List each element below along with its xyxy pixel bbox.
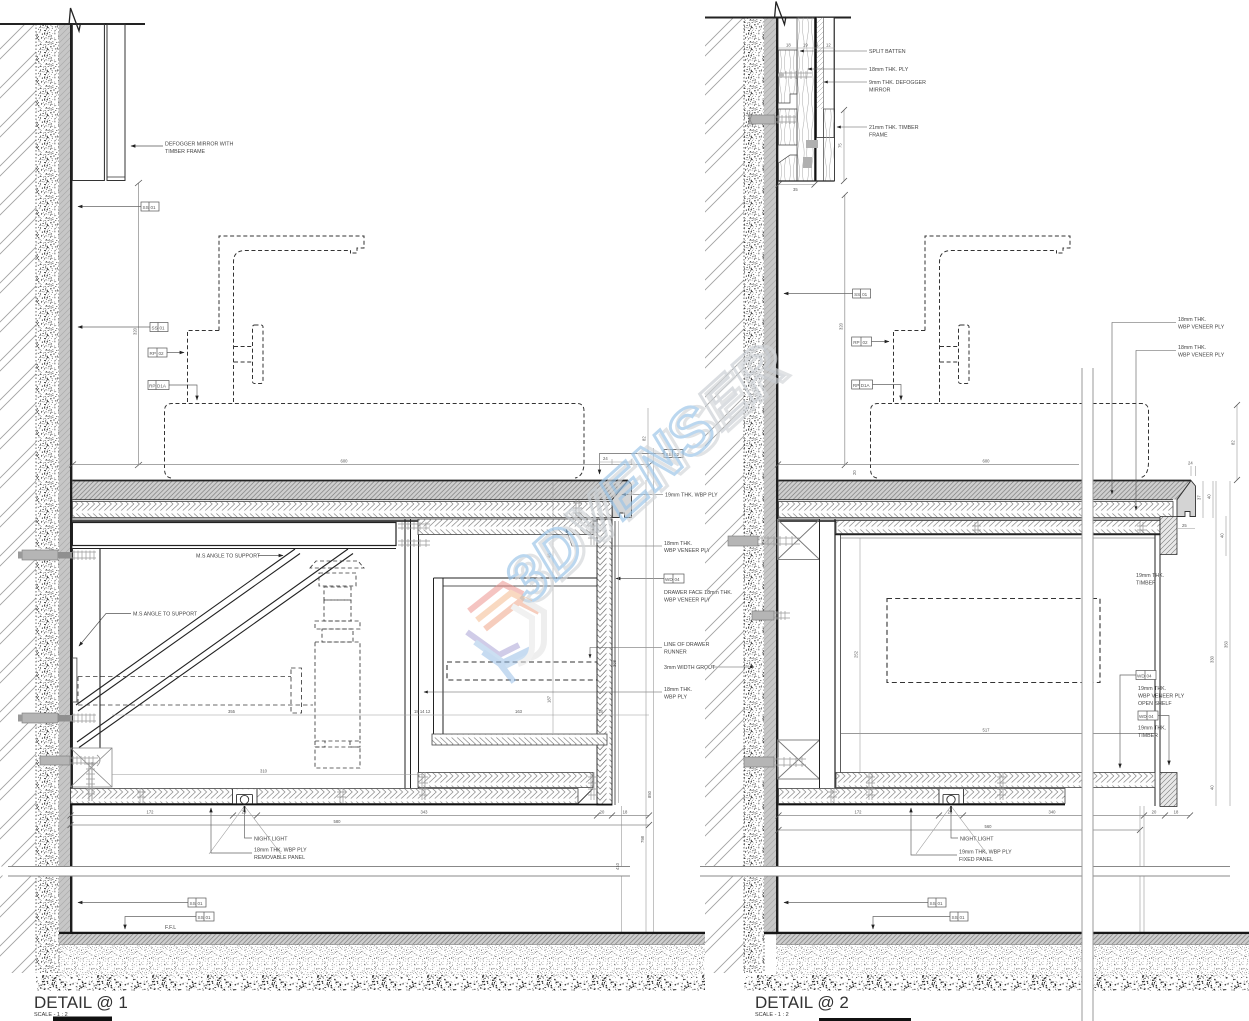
svg-text:18mm THK.: 18mm THK. [664,687,692,693]
svg-text:SS: SS [854,292,860,297]
svg-text:320: 320 [133,327,138,335]
svg-text:20: 20 [1152,810,1157,815]
svg-text:18mm THK.: 18mm THK. [1178,317,1206,323]
svg-text:TIMBER: TIMBER [1138,733,1158,739]
svg-text:308: 308 [612,659,617,667]
svg-text:WBP VENEER PLY: WBP VENEER PLY [1138,694,1185,700]
svg-text:TIMBER: TIMBER [1136,581,1156,587]
svg-text:18: 18 [623,810,628,815]
svg-text:35: 35 [793,187,798,192]
svg-text:798: 798 [640,835,645,843]
svg-text:TIMBER FRAME: TIMBER FRAME [165,149,205,155]
svg-text:WBP VENEER PLY: WBP VENEER PLY [1178,325,1225,331]
svg-text:04: 04 [675,577,681,582]
svg-text:600: 600 [341,459,349,464]
svg-text:OPEN SHELF: OPEN SHELF [1138,701,1172,707]
svg-text:355: 355 [228,709,236,714]
svg-text:350: 350 [1224,640,1229,648]
svg-text:SS: SS [930,901,936,906]
svg-text:560: 560 [985,824,993,829]
svg-text:D1A: D1A [157,384,167,389]
svg-text:340: 340 [1049,810,1057,815]
svg-text:FRAME: FRAME [869,133,888,139]
svg-text:SS: SS [143,205,149,210]
svg-text:24: 24 [1188,461,1193,466]
svg-text:25: 25 [1182,523,1187,528]
svg-text:DETAIL @ 1: DETAIL @ 1 [34,993,128,1012]
svg-text:172: 172 [147,810,155,815]
svg-text:F.F.L: F.F.L [165,925,176,931]
svg-text:RUNNER: RUNNER [664,650,687,656]
svg-text:850: 850 [647,790,652,798]
svg-text:02: 02 [863,340,869,345]
svg-text:600: 600 [983,459,991,464]
svg-text:LINE OF DRAWER: LINE OF DRAWER [664,642,710,648]
svg-text:MIRROR: MIRROR [869,88,891,94]
svg-text:SS: SS [152,326,158,331]
svg-text:19mm THK.: 19mm THK. [1138,726,1166,732]
svg-text:01: 01 [151,205,157,210]
svg-text:02: 02 [159,351,165,356]
svg-text:18: 18 [1174,810,1179,815]
svg-text:18mm THK.: 18mm THK. [1178,345,1206,351]
svg-text:19: 19 [803,43,808,48]
svg-text:18 14 12: 18 14 12 [414,709,431,714]
svg-text:WBP VENEER PLY: WBP VENEER PLY [664,548,711,554]
svg-text:517: 517 [983,728,991,733]
svg-text:D1A: D1A [861,383,871,388]
svg-text:SS: SS [198,915,204,920]
svg-text:SCALE - 1 : 2: SCALE - 1 : 2 [755,1012,789,1018]
svg-text:M.S ANGLE TO SUPPORT: M.S ANGLE TO SUPPORT [196,554,261,560]
svg-text:19mm THK. WBP PLY: 19mm THK. WBP PLY [959,850,1012,856]
svg-text:M.S ANGLE TO SUPPORT: M.S ANGLE TO SUPPORT [133,612,198,618]
svg-text:SPLIT BATTEN: SPLIT BATTEN [869,49,906,55]
svg-text:9mm THK. DEFOGGER: 9mm THK. DEFOGGER [869,80,926,86]
svg-text:18mm THK. WBP PLY: 18mm THK. WBP PLY [254,848,307,854]
svg-text:RP: RP [149,384,155,389]
svg-text:163: 163 [515,709,523,714]
svg-text:82: 82 [1231,440,1236,445]
svg-text:SS: SS [952,915,958,920]
svg-text:NIGHT LIGHT: NIGHT LIGHT [254,837,288,843]
svg-text:75: 75 [838,143,843,148]
svg-text:WBP PLY: WBP PLY [664,695,688,701]
svg-text:19mm THK.: 19mm THK. [1138,686,1166,692]
svg-text:18: 18 [786,43,791,48]
svg-text:20: 20 [600,810,605,815]
svg-text:SS: SS [190,901,196,906]
svg-text:DEFOGGER MIRROR WITH: DEFOGGER MIRROR WITH [165,142,233,148]
svg-text:40: 40 [1220,533,1225,538]
svg-text:01: 01 [862,292,868,297]
svg-text:21mm THK. TIMBER: 21mm THK. TIMBER [869,125,919,131]
svg-text:343: 343 [421,810,429,815]
svg-text:04: 04 [1149,714,1155,719]
svg-text:FIXED PANEL: FIXED PANEL [959,857,993,863]
svg-text:WD: WD [1137,674,1145,679]
svg-text:DETAIL @ 2: DETAIL @ 2 [755,993,849,1012]
svg-text:330: 330 [1210,655,1215,663]
svg-text:410: 410 [615,862,620,870]
svg-text:01: 01 [160,326,166,331]
svg-text:20: 20 [852,470,857,475]
svg-text:RP: RP [853,340,859,345]
svg-text:01: 01 [938,901,944,906]
svg-text:580: 580 [334,819,342,824]
svg-text:18: 18 [598,709,603,714]
svg-text:40: 40 [1210,785,1215,790]
svg-text:19mm THK.: 19mm THK. [1136,573,1164,579]
svg-text:NIGHT LIGHT: NIGHT LIGHT [960,837,994,843]
svg-text:WD: WD [665,577,673,582]
svg-text:REMOVABLE PANEL: REMOVABLE PANEL [254,855,305,861]
svg-text:37: 37 [1197,495,1202,500]
svg-text:WD: WD [1139,714,1147,719]
svg-text:RP: RP [150,351,156,356]
svg-text:310: 310 [260,769,268,774]
svg-text:40: 40 [1207,494,1212,499]
svg-text:WBP VENEER PLY: WBP VENEER PLY [664,598,711,604]
svg-text:252: 252 [854,650,859,658]
svg-text:172: 172 [855,810,863,815]
svg-text:04: 04 [1147,674,1153,679]
svg-text:18mm THK.: 18mm THK. [664,541,692,547]
svg-text:01: 01 [198,901,204,906]
svg-text:187: 187 [547,695,552,703]
svg-text:12: 12 [826,43,831,48]
svg-text:320: 320 [839,322,844,330]
svg-text:01: 01 [206,915,212,920]
svg-text:01: 01 [960,915,966,920]
svg-text:WBP VENEER PLY: WBP VENEER PLY [1178,353,1225,359]
svg-text:RP: RP [853,383,859,388]
svg-text:18mm THK. PLY: 18mm THK. PLY [869,67,909,73]
